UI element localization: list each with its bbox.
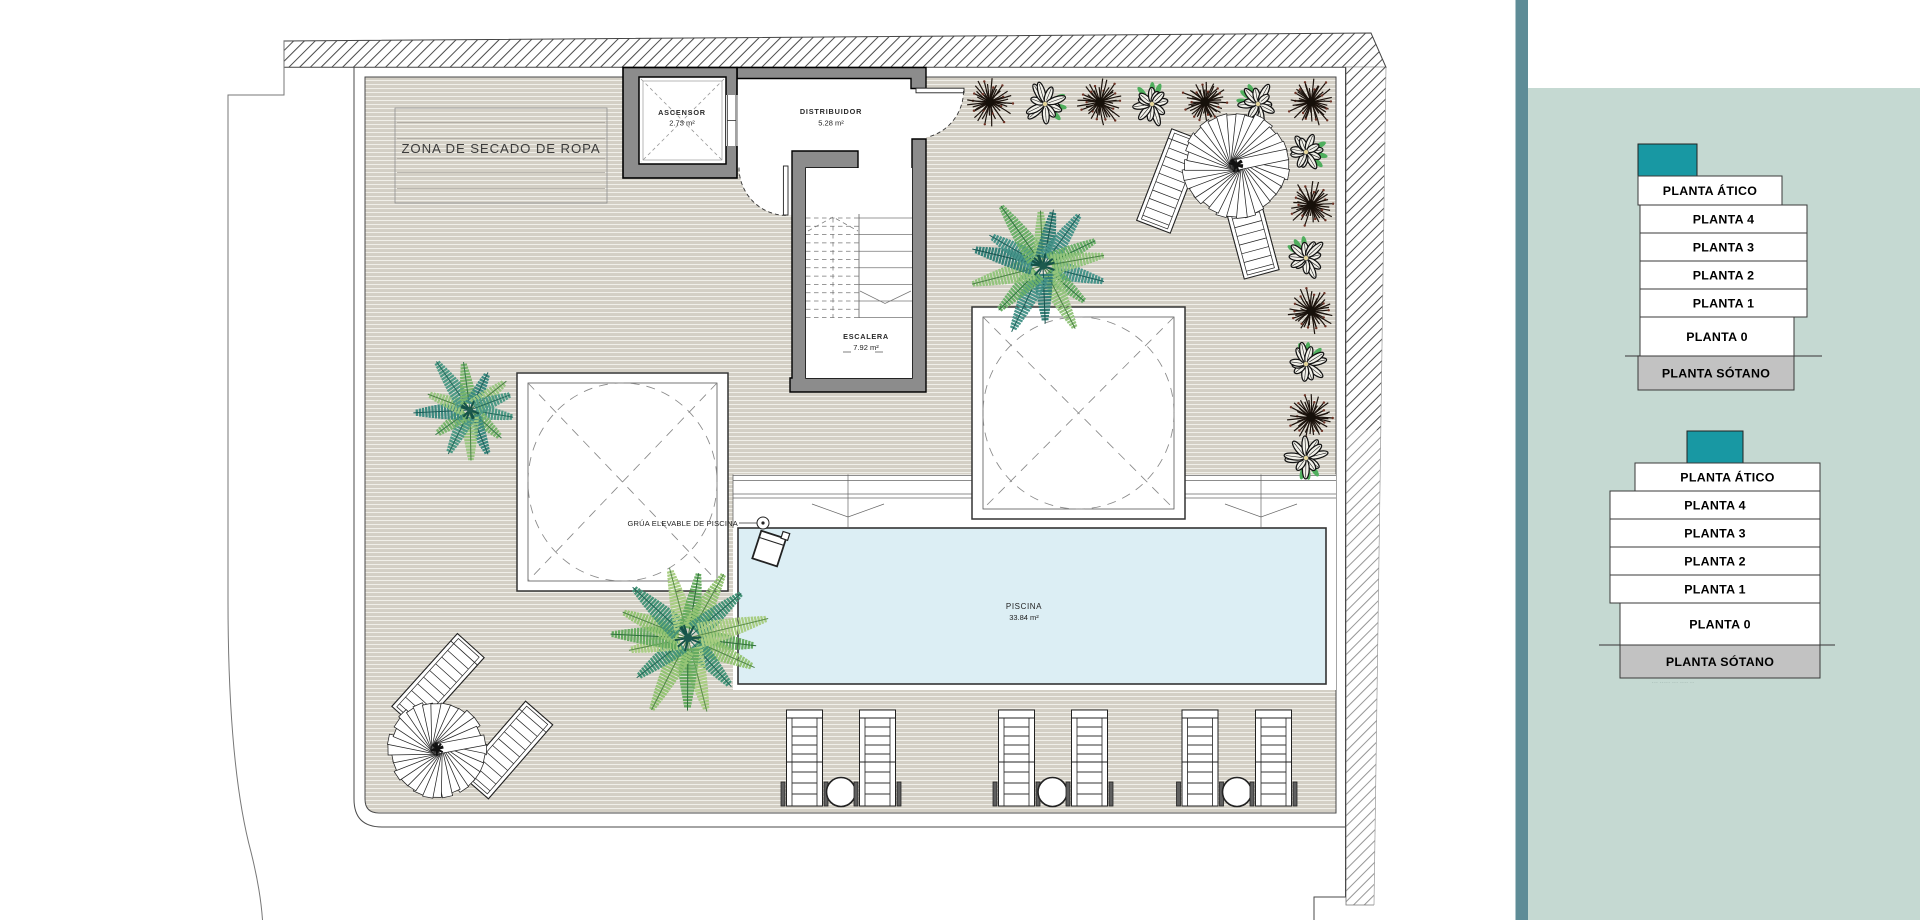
svg-text:PLANTA ÁTICO: PLANTA ÁTICO [1680,470,1775,485]
svg-text:ZONA DE SECADO DE ROPA: ZONA DE SECADO DE ROPA [401,141,600,156]
svg-text:33.84 m²: 33.84 m² [1009,613,1039,622]
svg-text:ASCENSOR: ASCENSOR [658,108,706,117]
svg-text:PLANTA SÓTANO: PLANTA SÓTANO [1662,366,1770,381]
svg-text:2.73 m²: 2.73 m² [669,119,695,128]
svg-text:PLANTA 3: PLANTA 3 [1684,527,1746,541]
svg-text:PLANTA 1: PLANTA 1 [1684,583,1746,597]
svg-text:PISCINA: PISCINA [1006,602,1042,611]
svg-text:PLANTA 0: PLANTA 0 [1686,330,1748,344]
svg-text:PLANTA 2: PLANTA 2 [1684,555,1746,569]
svg-text:GRÚA ELEVABLE DE PISCINA: GRÚA ELEVABLE DE PISCINA [627,519,738,528]
svg-text:PLANTA SÓTANO: PLANTA SÓTANO [1666,654,1774,669]
svg-text:··· ····· ··· ···· ··: ··· ····· ··· ···· ·· [1652,680,1694,686]
svg-text:PLANTA 0: PLANTA 0 [1689,618,1751,632]
svg-text:PLANTA ÁTICO: PLANTA ÁTICO [1663,183,1758,198]
svg-text:DISTRIBUIDOR: DISTRIBUIDOR [800,107,862,116]
svg-text:PLANTA 1: PLANTA 1 [1693,297,1755,311]
svg-text:5.28 m²: 5.28 m² [818,119,844,128]
svg-text:PLANTA 2: PLANTA 2 [1693,269,1755,283]
svg-text:PLANTA 4: PLANTA 4 [1693,213,1755,227]
svg-text:PLANTA 3: PLANTA 3 [1693,241,1755,255]
svg-text:7.92 m²: 7.92 m² [853,343,879,352]
svg-text:PLANTA 4: PLANTA 4 [1684,499,1746,513]
svg-text:ESCALERA: ESCALERA [843,332,889,341]
